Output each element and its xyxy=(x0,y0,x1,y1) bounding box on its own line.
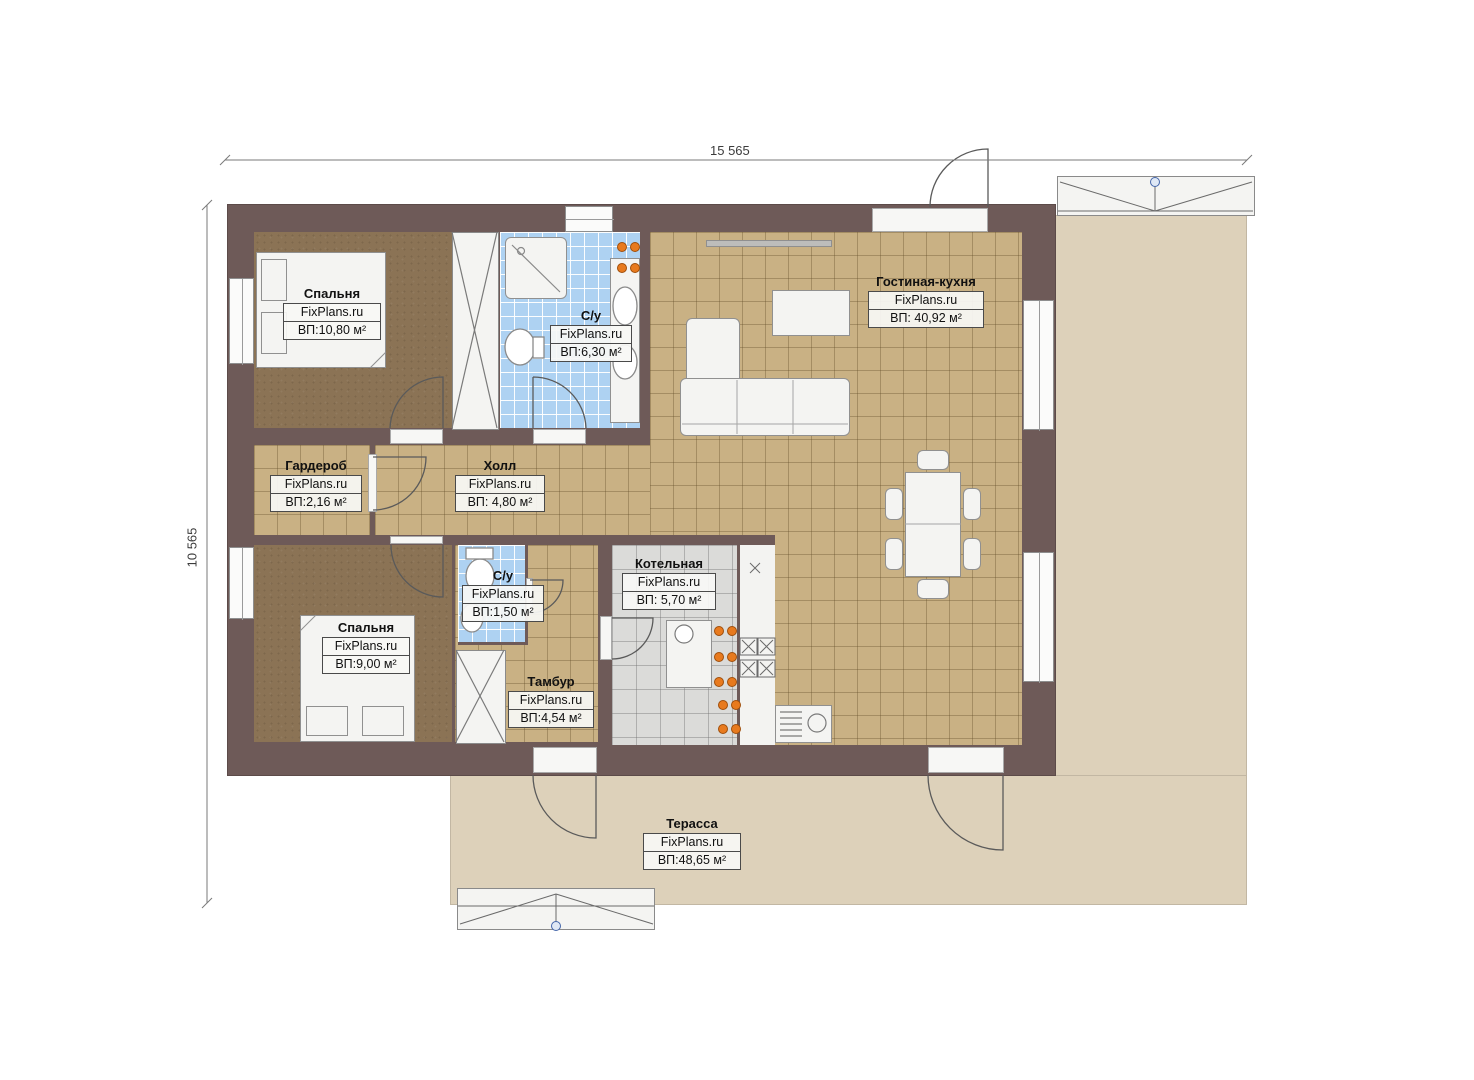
boiler-valve-dot xyxy=(718,724,728,734)
towel-rail-dot xyxy=(630,242,640,252)
window-bedroom1 xyxy=(229,278,254,364)
wall-above-boiler xyxy=(598,535,775,545)
room-label-tambur: Тамбур FixPlans.ru ВП:4,54 м² xyxy=(508,674,594,728)
boiler-valve-dot xyxy=(718,700,728,710)
room-brand: FixPlans.ru xyxy=(462,585,544,604)
dining-chair xyxy=(885,538,903,570)
kitchen-counter xyxy=(737,545,775,745)
room-area: ВП:48,65 м² xyxy=(643,851,741,870)
bedroom1-wardrobe-cabinet xyxy=(452,232,499,430)
kitchen-sink-unit xyxy=(775,705,832,743)
room-name: С/у xyxy=(550,308,632,323)
room-label-hall: Холл FixPlans.ru ВП: 4,80 м² xyxy=(455,458,545,512)
room-brand: FixPlans.ru xyxy=(455,475,545,494)
room-brand: FixPlans.ru xyxy=(643,833,741,852)
room-area: ВП: 4,80 м² xyxy=(455,493,545,512)
dimension-line-left xyxy=(202,200,212,908)
room-name: Спальня xyxy=(322,620,410,635)
room-area: ВП: 40,92 м² xyxy=(868,309,984,328)
dining-chair xyxy=(917,450,949,470)
room-label-bathroom1: С/у FixPlans.ru ВП:6,30 м² xyxy=(550,308,632,362)
door-threshold-top-entrance xyxy=(872,208,988,232)
boiler-valve-dot xyxy=(714,677,724,687)
towel-rail-dot xyxy=(630,263,640,273)
entrance-steps-top xyxy=(1057,176,1255,216)
pillow xyxy=(306,706,348,736)
dining-chair xyxy=(885,488,903,520)
window-top xyxy=(565,206,613,232)
room-brand: FixPlans.ru xyxy=(508,691,594,710)
room-name: Спальня xyxy=(283,286,381,301)
room-brand: FixPlans.ru xyxy=(868,291,984,310)
room-area: ВП:4,54 м² xyxy=(508,709,594,728)
room-label-bathroom2: С/у FixPlans.ru ВП:1,50 м² xyxy=(462,568,544,622)
room-brand: FixPlans.ru xyxy=(283,303,381,322)
boiler-valve-dot xyxy=(727,677,737,687)
pillow xyxy=(362,706,404,736)
window-living-right-2 xyxy=(1023,552,1054,682)
towel-rail-dot xyxy=(617,242,627,252)
tv-panel xyxy=(706,240,832,247)
door-threshold-tambur-entrance xyxy=(533,747,597,773)
boiler-unit xyxy=(666,620,712,688)
dining-chair xyxy=(963,538,981,570)
door-threshold-boiler xyxy=(600,616,612,660)
dining-chair xyxy=(917,579,949,599)
room-brand: FixPlans.ru xyxy=(550,325,632,344)
shower-tray xyxy=(505,237,567,299)
terrace-bottom-area xyxy=(450,775,1247,905)
room-label-boiler: Котельная FixPlans.ru ВП: 5,70 м² xyxy=(622,556,716,610)
room-label-living-kitchen: Гостиная-кухня FixPlans.ru ВП: 40,92 м² xyxy=(868,274,984,328)
boiler-valve-dot xyxy=(714,626,724,636)
dining-table xyxy=(905,472,961,577)
coffee-table xyxy=(772,290,850,336)
room-name: Гардероб xyxy=(270,458,362,473)
boiler-valve-dot xyxy=(731,724,741,734)
sofa-seat xyxy=(680,378,850,436)
room-label-terrace: Терасса FixPlans.ru ВП:48,65 м² xyxy=(643,816,741,870)
boiler-valve-dot xyxy=(714,652,724,662)
room-label-bedroom1: Спальня FixPlans.ru ВП:10,80 м² xyxy=(283,286,381,340)
boiler-valve-dot xyxy=(727,652,737,662)
room-area: ВП:2,16 м² xyxy=(270,493,362,512)
room-brand: FixPlans.ru xyxy=(270,475,362,494)
door-threshold-living-terrace xyxy=(928,747,1004,773)
door-threshold-bedroom2 xyxy=(390,536,443,544)
boiler-valve-dot xyxy=(731,700,741,710)
room-brand: FixPlans.ru xyxy=(322,637,410,656)
door-threshold-bedroom1 xyxy=(390,429,443,444)
room-area: ВП: 5,70 м² xyxy=(622,591,716,610)
room-label-bedroom2: Спальня FixPlans.ru ВП:9,00 м² xyxy=(322,620,410,674)
room-name: Котельная xyxy=(622,556,716,571)
room-name: С/у xyxy=(462,568,544,583)
room-name: Гостиная-кухня xyxy=(868,274,984,289)
room-name: Терасса xyxy=(643,816,741,831)
room-name: Холл xyxy=(455,458,545,473)
room-brand: FixPlans.ru xyxy=(622,573,716,592)
floor-plan-canvas: 15 565 10 565 Спальня FixPlans.ru ВП:10,… xyxy=(0,0,1474,1080)
dimension-left-label: 10 565 xyxy=(184,528,199,568)
room-name: Тамбур xyxy=(508,674,594,689)
room-area: ВП:9,00 м² xyxy=(322,655,410,674)
towel-rail-dot xyxy=(617,263,627,273)
window-bedroom2 xyxy=(229,547,254,619)
window-living-right-1 xyxy=(1023,300,1054,430)
dimension-top-label: 15 565 xyxy=(710,143,750,158)
boiler-valve-dot xyxy=(727,626,737,636)
room-label-wardrobe: Гардероб FixPlans.ru ВП:2,16 м² xyxy=(270,458,362,512)
tambur-closet xyxy=(456,650,506,744)
dining-chair xyxy=(963,488,981,520)
entrance-steps-bottom xyxy=(457,888,655,930)
room-area: ВП:10,80 м² xyxy=(283,321,381,340)
door-threshold-wardrobe xyxy=(368,454,377,512)
room-area: ВП:6,30 м² xyxy=(550,343,632,362)
room-area: ВП:1,50 м² xyxy=(462,603,544,622)
door-threshold-bathroom1 xyxy=(533,429,586,444)
